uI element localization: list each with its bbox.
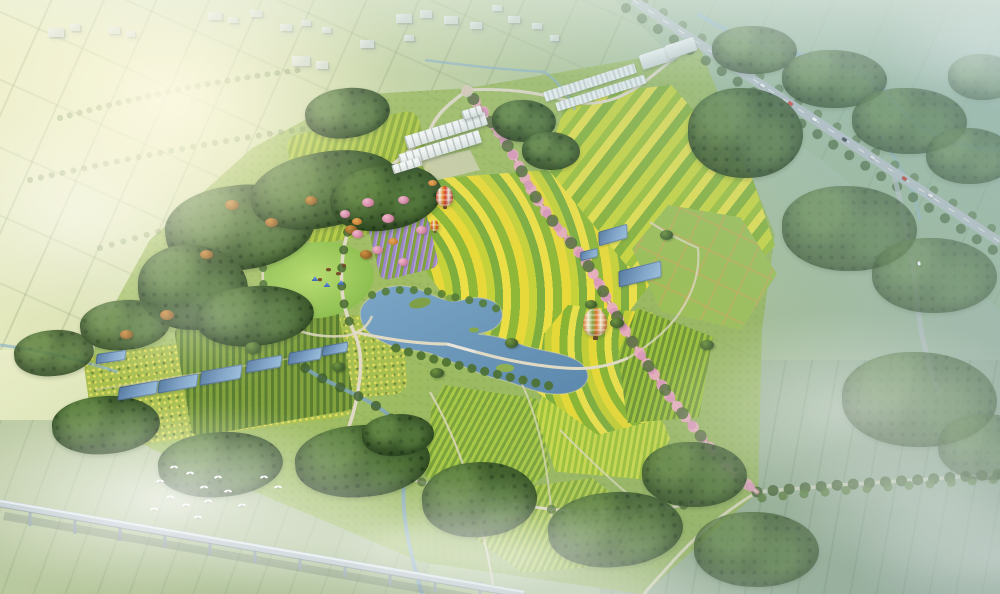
aerial-eco-park-rendering [0,0,1000,594]
